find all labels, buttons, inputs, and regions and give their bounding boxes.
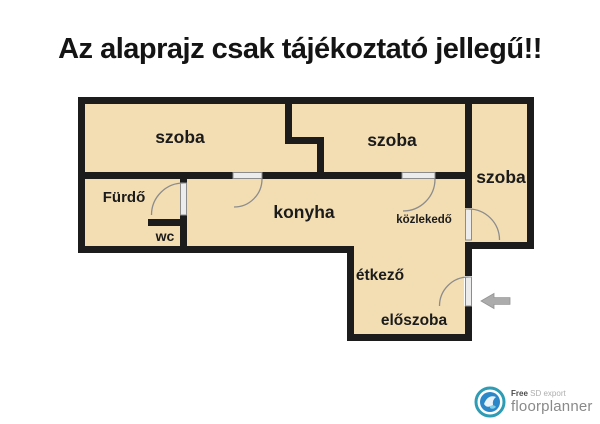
door-leaf-szoba1	[233, 173, 262, 179]
room-label-szoba-3: szoba	[476, 167, 526, 187]
wall-szoba1-szoba2-upper	[285, 97, 292, 144]
door-leaf-szoba2	[402, 173, 435, 179]
door-leaf-entrance	[466, 277, 472, 306]
door-leaf-szoba3	[466, 209, 472, 240]
footer-export-label: Free SD export	[511, 390, 593, 398]
room-label-etkezo: étkező	[356, 267, 404, 284]
wall-wc-stub	[148, 219, 187, 226]
room-label-konyha: konyha	[273, 202, 335, 222]
room-label-furdo: Fürdő	[103, 189, 146, 206]
floorplanner-brand-label: floorplanner	[511, 399, 593, 414]
room-label-kozlekedo: közlekedő	[396, 214, 452, 226]
floorplanner-footer: Free SD export floorplanner	[474, 386, 593, 418]
room-label-szoba-1: szoba	[155, 127, 205, 147]
wall-furdo-divider-upper	[180, 172, 187, 183]
room-label-szoba-2: szoba	[367, 130, 417, 150]
footer-sd-export-label: SD export	[530, 389, 566, 398]
floorplanner-logo-icon	[474, 386, 506, 418]
floorplan-drawing: szoba szoba szoba Fürdő wc konyha közlek…	[0, 0, 600, 424]
wall-szoba1-bottom-left	[78, 172, 233, 179]
room-label-eloszoba: előszoba	[381, 312, 448, 329]
footer-free-label: Free	[511, 389, 528, 398]
wall-szoba2-szoba3-divider	[465, 97, 472, 208]
door-leaf-furdo	[181, 183, 187, 215]
room-label-wc: wc	[155, 228, 175, 244]
wall-szoba1-szoba2-lower	[317, 137, 324, 179]
entrance-arrow-icon	[481, 294, 510, 309]
wall-szoba1-bottom-right	[262, 172, 402, 179]
